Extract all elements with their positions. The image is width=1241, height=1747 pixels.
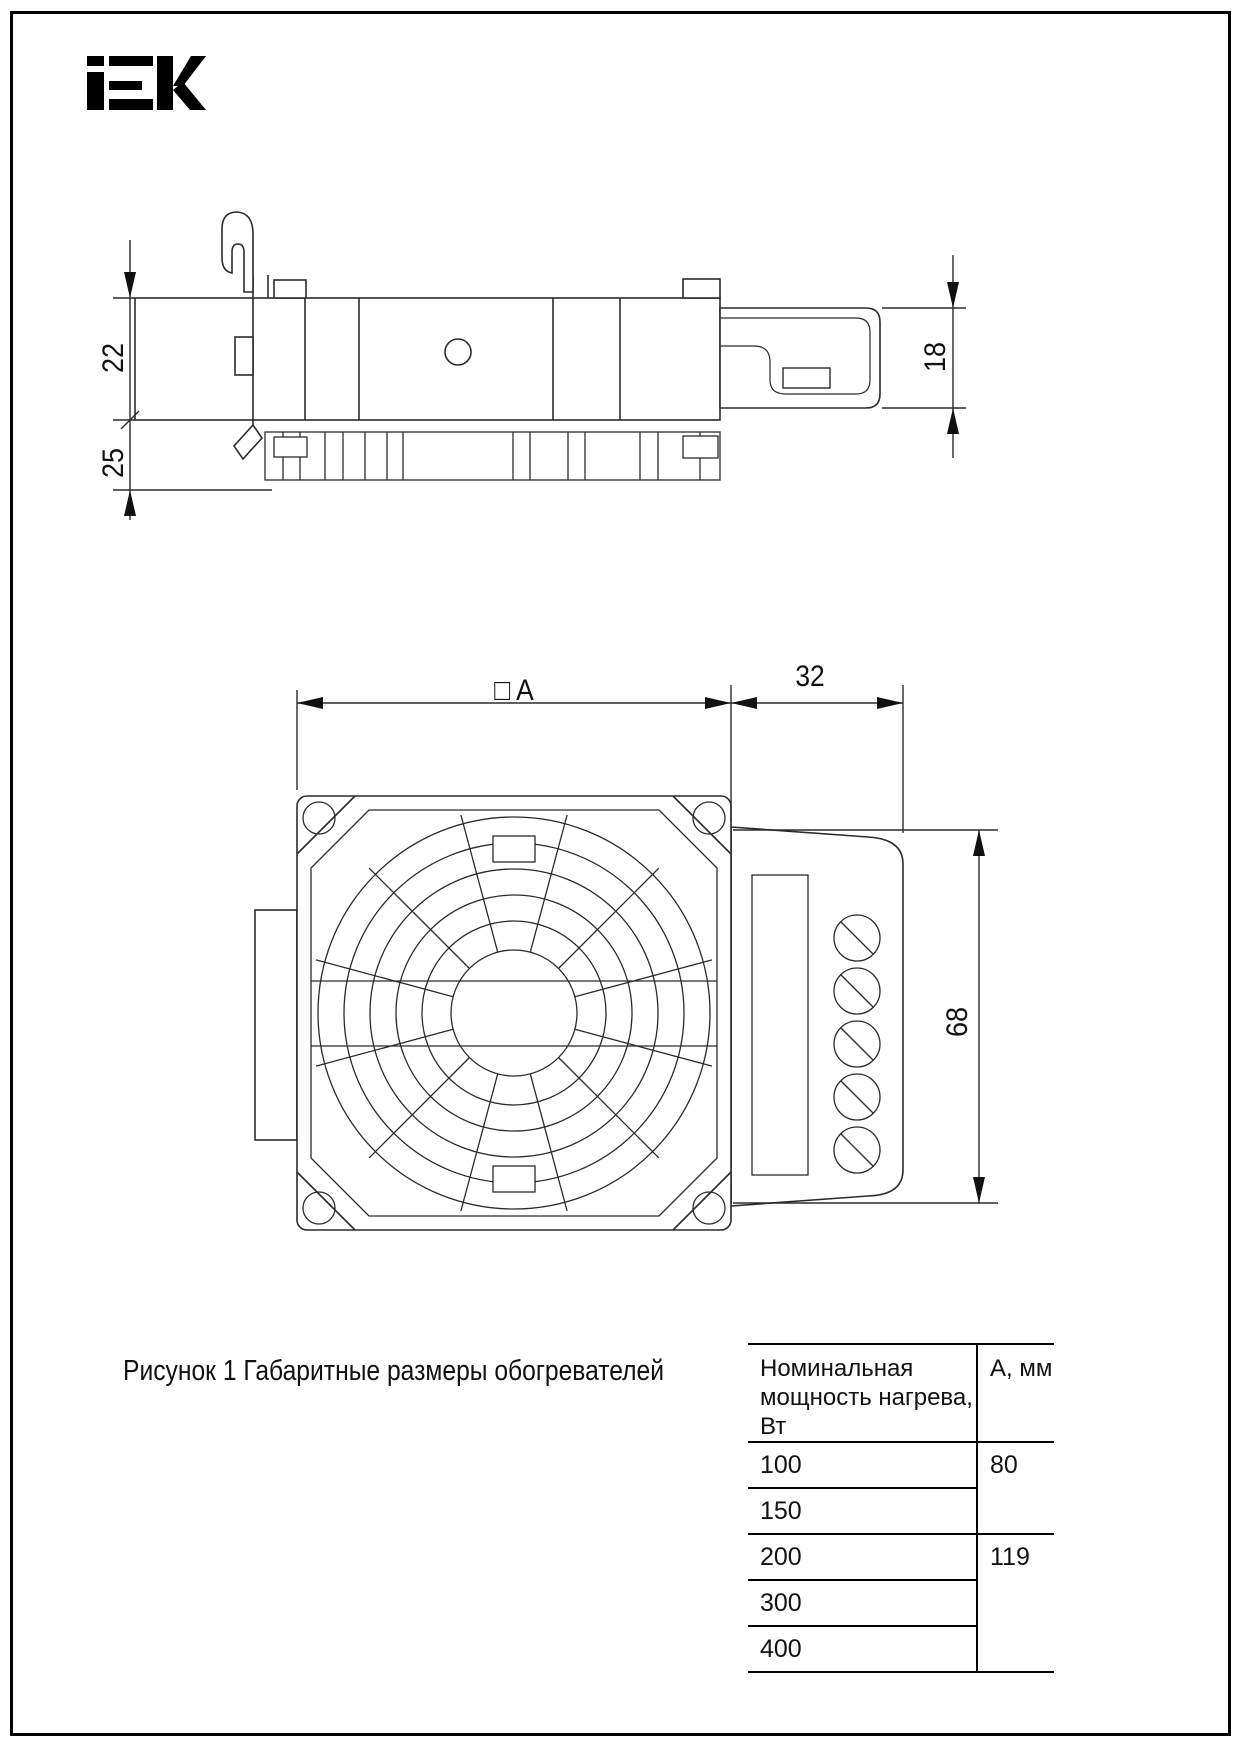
dim-label-18: 18 xyxy=(921,328,951,386)
header-power: Номинальная мощность нагрева, Вт xyxy=(748,1344,977,1442)
a-value-cell: 119 xyxy=(977,1534,1054,1672)
arrow-up-icon xyxy=(973,830,985,856)
dim-label-68: 68 xyxy=(943,993,973,1051)
dim-label-25: 25 xyxy=(99,434,129,492)
power-cell: 400 xyxy=(748,1626,977,1672)
a-value-cell: 80 xyxy=(977,1442,1054,1534)
heatsink-fins xyxy=(265,432,720,480)
arrow-down-icon xyxy=(947,282,959,308)
side-view-drawing xyxy=(60,180,1000,540)
power-cell: 200 xyxy=(748,1534,977,1580)
terminal-block xyxy=(731,827,903,1206)
power-dimension-table: Номинальная мощность нагрева, Вт А, мм 1… xyxy=(748,1343,1054,1673)
arrow-left-icon xyxy=(297,697,323,709)
arrow-down-icon xyxy=(973,1177,985,1203)
table-row: 100 80 xyxy=(748,1442,1054,1488)
fan-grille xyxy=(297,796,731,1230)
power-cell: 150 xyxy=(748,1488,977,1534)
arrow-left-icon xyxy=(731,697,757,709)
dim-label-32: 32 xyxy=(782,662,838,692)
power-cell: 100 xyxy=(748,1442,977,1488)
table-header-row: Номинальная мощность нагрева, Вт А, мм xyxy=(748,1344,1054,1442)
arrow-up-icon xyxy=(124,490,136,516)
arrow-up-icon xyxy=(947,408,959,434)
heater-body xyxy=(135,279,720,420)
terminal-housing-side xyxy=(720,308,880,408)
iek-logo xyxy=(85,56,207,110)
arrow-right-icon xyxy=(877,697,903,709)
header-a-mm: А, мм xyxy=(977,1344,1054,1442)
dim-label-22: 22 xyxy=(99,329,129,387)
dim-label-square-A: □ A xyxy=(457,676,571,706)
figure-caption: Рисунок 1 Габаритные размеры обогревател… xyxy=(123,1357,664,1386)
mounting-bracket xyxy=(255,910,297,1140)
table-row: 200 119 xyxy=(748,1534,1054,1580)
front-view-drawing xyxy=(230,650,1040,1270)
arrow-right-icon xyxy=(705,697,731,709)
catalog-page: IEK xyxy=(0,0,1241,1747)
brand-name: IEK xyxy=(0,0,1,1)
arrow-down-icon xyxy=(124,272,136,298)
power-cell: 300 xyxy=(748,1580,977,1626)
